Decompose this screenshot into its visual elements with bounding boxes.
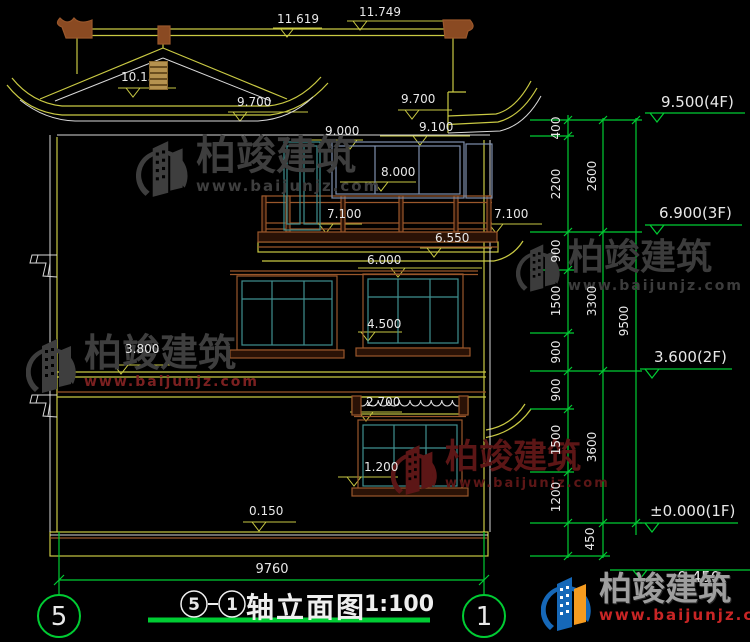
drawing-scale: 1:100 [364, 592, 434, 617]
wall-corbel-lower [30, 395, 57, 417]
window-3f-right-frame [363, 274, 463, 348]
cad-linework [0, 0, 750, 642]
gable-hanging-ornament [149, 61, 168, 90]
title-axis-start: 5 [182, 595, 206, 615]
window-3f-left-frame [237, 276, 337, 350]
drawing-title: 轴立面图 [246, 586, 366, 626]
title-axis-end: 1 [220, 595, 244, 615]
overall-width-dimension: 9760 [230, 562, 314, 577]
ridge-ornament-center [158, 26, 170, 44]
window-4f [332, 142, 492, 198]
wall-corbel-upper [30, 255, 57, 277]
dimension-grid [38, 113, 750, 637]
axis-bubble-left-label: 5 [44, 602, 74, 632]
wood-elements [50, 18, 498, 538]
window-1f-frame [358, 420, 462, 490]
elevation-drawing-canvas: 柏竣建筑 www.baijunjz.com 柏竣建筑 www.baijunjz.… [0, 0, 750, 642]
ridge-ornament-left [57, 18, 92, 38]
axis-bubble-right-label: 1 [469, 602, 499, 632]
ridge-ornament-right [443, 20, 473, 38]
